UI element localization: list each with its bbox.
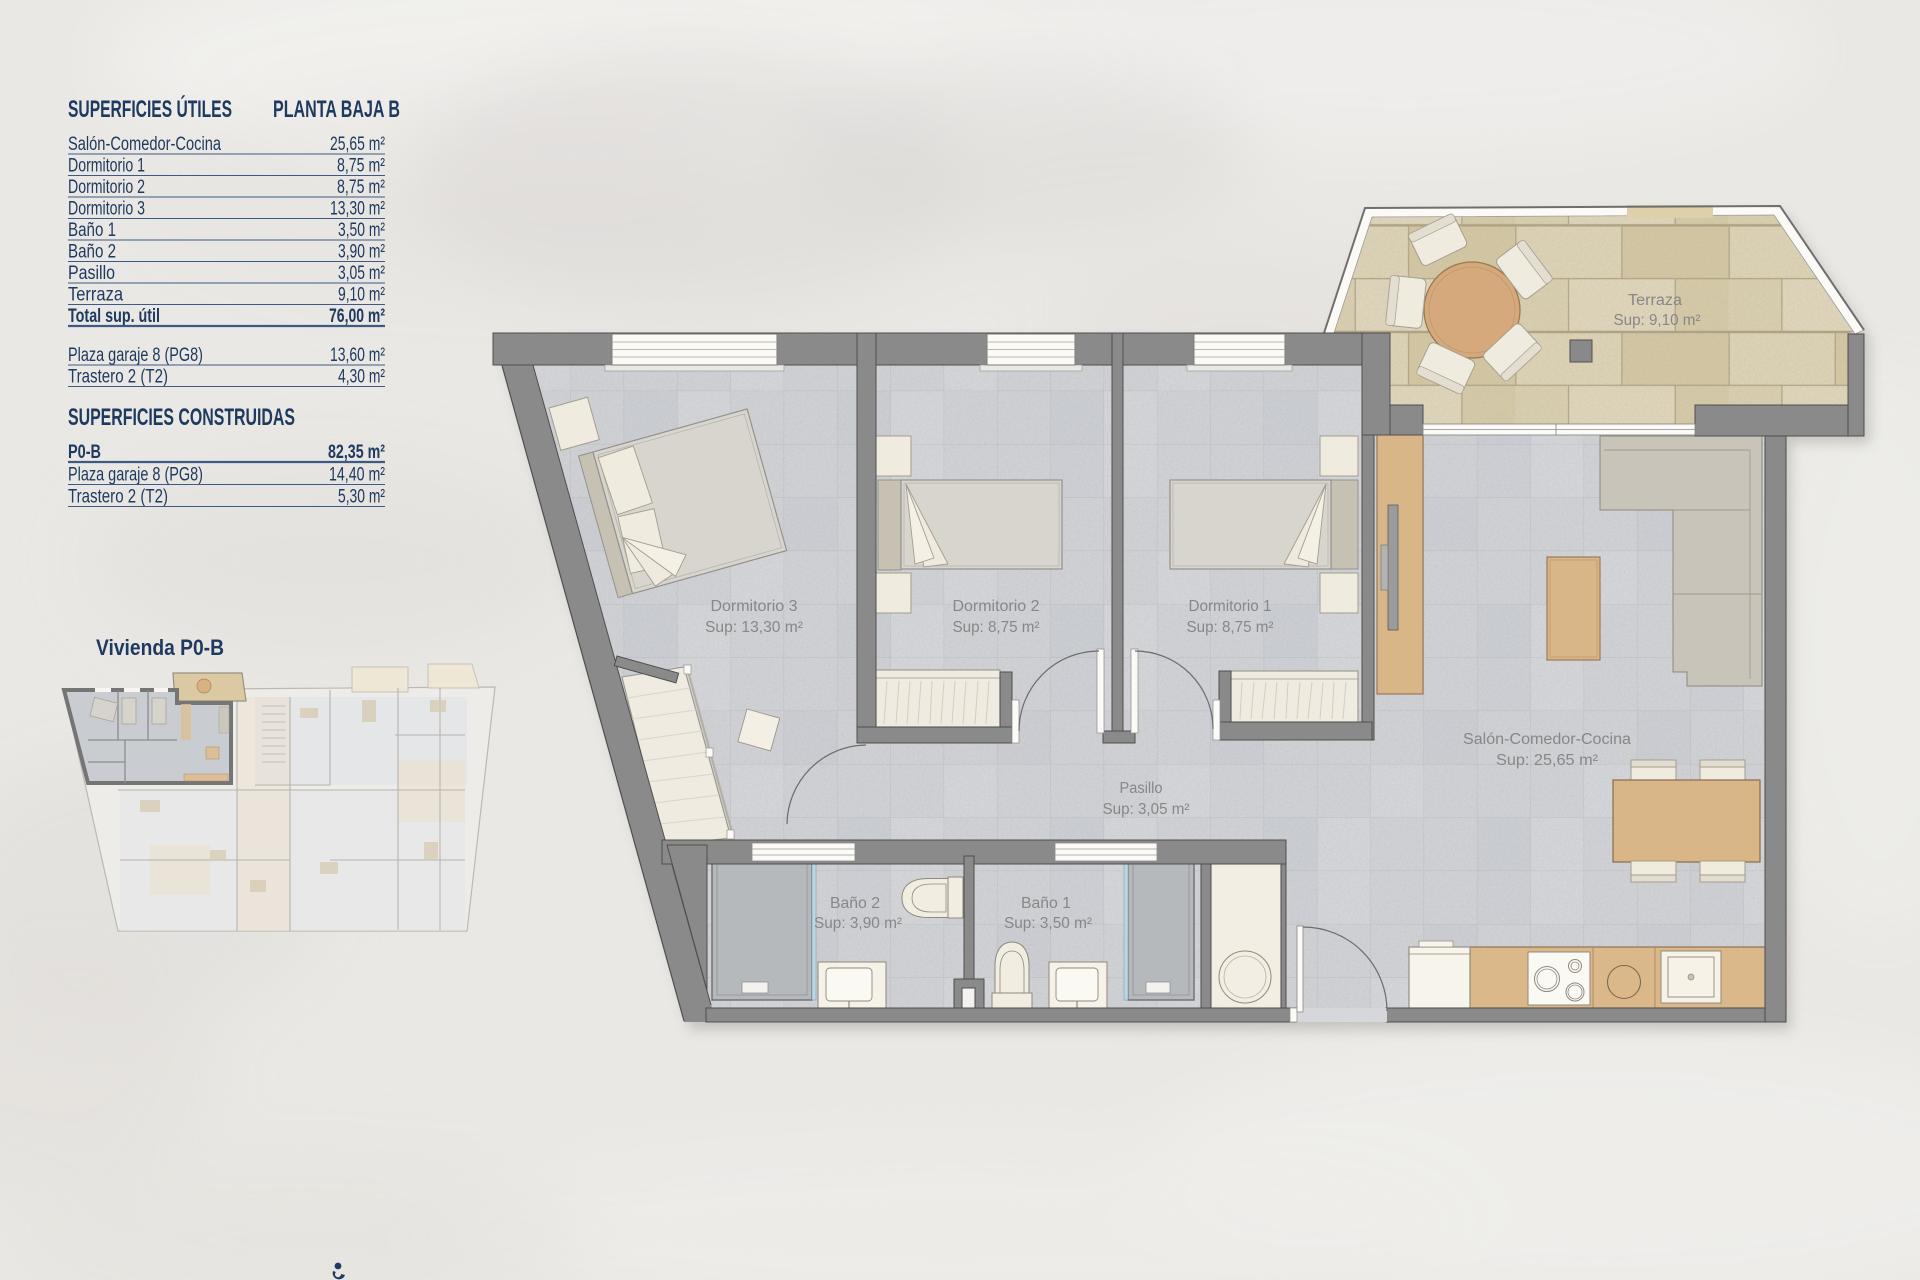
- svg-text:Dormitorio 1: Dormitorio 1: [1189, 598, 1272, 615]
- svg-text:3,90 m²: 3,90 m²: [338, 242, 385, 263]
- svg-text:Sup: 13,30 m²: Sup: 13,30 m²: [705, 619, 803, 636]
- svg-text:25,65 m²: 25,65 m²: [330, 134, 385, 155]
- svg-text:SUPERFICIES CONSTRUIDAS: SUPERFICIES CONSTRUIDAS: [68, 404, 295, 431]
- svg-text:82,35 m²: 82,35 m²: [328, 442, 385, 463]
- svg-text:4,30 m²: 4,30 m²: [338, 367, 385, 388]
- svg-text:5,30 m²: 5,30 m²: [338, 487, 385, 508]
- svg-text:Terraza: Terraza: [68, 285, 123, 306]
- svg-text:Sup: 3,05 m²: Sup: 3,05 m²: [1103, 801, 1190, 818]
- svg-text:3,50 m²: 3,50 m²: [338, 220, 385, 241]
- svg-text:Dormitorio 2: Dormitorio 2: [953, 598, 1040, 615]
- svg-text:Total sup. útil: Total sup. útil: [68, 306, 160, 327]
- svg-text:Trastero 2 (T2): Trastero 2 (T2): [68, 367, 168, 388]
- svg-text:Sup: 9,10 m²: Sup: 9,10 m²: [1614, 312, 1701, 329]
- svg-text:13,60 m²: 13,60 m²: [330, 345, 385, 366]
- svg-text:Trastero 2 (T2): Trastero 2 (T2): [68, 487, 168, 508]
- svg-text:3,05 m²: 3,05 m²: [338, 263, 385, 284]
- svg-text:Dormitorio 1: Dormitorio 1: [68, 156, 145, 177]
- svg-text:Sup: 8,75 m²: Sup: 8,75 m²: [1187, 619, 1274, 636]
- svg-text:Sup: 3,90 m²: Sup: 3,90 m²: [814, 915, 902, 932]
- svg-text:Vivienda P0-B: Vivienda P0-B: [96, 635, 224, 660]
- svg-text:Baño 1: Baño 1: [68, 220, 116, 241]
- svg-text:Salón-Comedor-Cocina: Salón-Comedor-Cocina: [68, 134, 221, 155]
- svg-text:Dormitorio 3: Dormitorio 3: [711, 598, 798, 615]
- svg-text:9,10 m²: 9,10 m²: [338, 285, 385, 306]
- svg-text:13,30 m²: 13,30 m²: [330, 199, 385, 220]
- svg-text:PLANTA BAJA B: PLANTA BAJA B: [273, 96, 400, 123]
- svg-text:Pasillo: Pasillo: [1120, 780, 1163, 797]
- svg-text:Dormitorio 3: Dormitorio 3: [68, 199, 145, 220]
- svg-text:Baño 2: Baño 2: [68, 242, 116, 263]
- svg-text:Terraza: Terraza: [1628, 292, 1682, 309]
- svg-text:Plaza garaje 8 (PG8): Plaza garaje 8 (PG8): [68, 465, 203, 486]
- svg-text:Plaza garaje 8 (PG8): Plaza garaje 8 (PG8): [68, 345, 203, 366]
- svg-text:Dormitorio 2: Dormitorio 2: [68, 177, 145, 198]
- svg-text:Salón-Comedor-Cocina: Salón-Comedor-Cocina: [1463, 731, 1631, 748]
- svg-text:Baño 2: Baño 2: [830, 895, 880, 912]
- svg-text:P0-B: P0-B: [68, 442, 101, 463]
- svg-text:76,00 m²: 76,00 m²: [329, 306, 385, 327]
- svg-text:Sup: 3,50 m²: Sup: 3,50 m²: [1004, 915, 1092, 932]
- svg-text:14,40 m²: 14,40 m²: [329, 465, 385, 486]
- svg-text:SUPERFICIES ÚTILES: SUPERFICIES ÚTILES: [68, 95, 232, 123]
- svg-text:8,75 m²: 8,75 m²: [337, 177, 385, 198]
- svg-text:Sup: 25,65 m²: Sup: 25,65 m²: [1496, 752, 1598, 769]
- svg-text:8,75 m²: 8,75 m²: [337, 156, 385, 177]
- svg-text:Sup: 8,75 m²: Sup: 8,75 m²: [953, 619, 1040, 636]
- svg-text:Baño 1: Baño 1: [1021, 895, 1071, 912]
- svg-text:Pasillo: Pasillo: [68, 263, 115, 284]
